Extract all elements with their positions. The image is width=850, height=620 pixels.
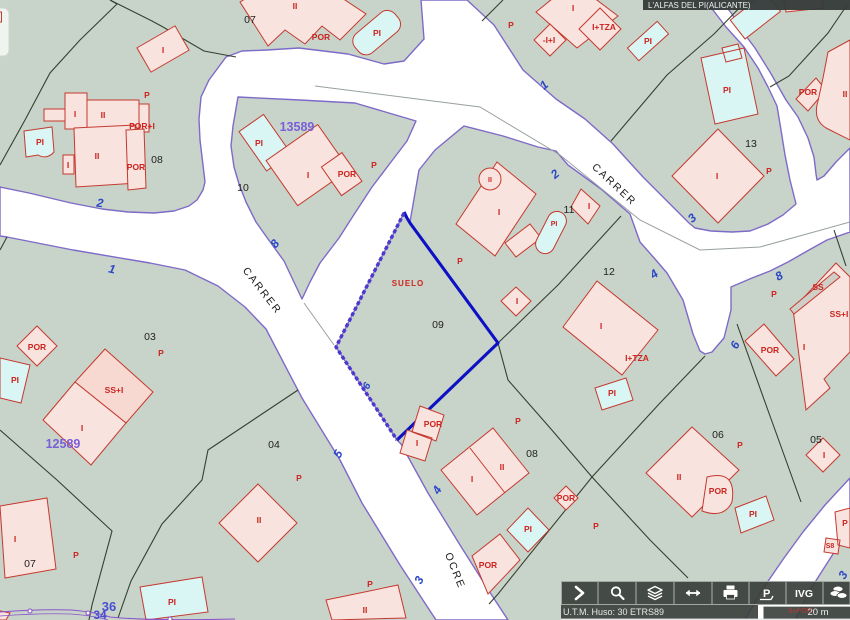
svg-text:04: 04 <box>268 439 280 451</box>
svg-text:POR+I: POR+I <box>129 121 155 131</box>
svg-text:-I+I: -I+I <box>543 35 556 45</box>
svg-text:P: P <box>593 521 599 531</box>
svg-text:PI: PI <box>524 524 532 534</box>
svg-text:PI: PI <box>608 388 616 398</box>
svg-text:S+POR: S+POR <box>788 608 812 615</box>
svg-text:13589: 13589 <box>280 120 315 134</box>
svg-text:P: P <box>763 588 770 600</box>
svg-text:POR: POR <box>312 32 330 42</box>
svg-text:I: I <box>572 3 574 13</box>
svg-text:P: P <box>771 289 777 299</box>
svg-text:SS+I: SS+I <box>105 385 124 395</box>
svg-text:POR: POR <box>127 162 145 172</box>
svg-text:I: I <box>74 109 76 119</box>
svg-text:SS+I: SS+I <box>830 309 849 319</box>
svg-text:II: II <box>101 110 106 120</box>
svg-text:11: 11 <box>564 204 575 216</box>
svg-text:I: I <box>498 207 500 217</box>
svg-text:I: I <box>803 342 805 352</box>
svg-text:I: I <box>516 296 518 306</box>
svg-text:PI: PI <box>644 36 652 46</box>
svg-text:06: 06 <box>712 429 724 441</box>
svg-text:13: 13 <box>745 138 757 150</box>
svg-text:U.T.M. Huso: 30 ETRS89: U.T.M. Huso: 30 ETRS89 <box>563 607 664 617</box>
svg-text:P: P <box>371 160 377 170</box>
svg-text:03: 03 <box>144 331 156 343</box>
svg-text:I: I <box>600 321 602 331</box>
svg-text:I: I <box>588 201 590 211</box>
svg-text:II: II <box>293 1 298 11</box>
svg-text:P: P <box>737 440 743 450</box>
svg-text:P: P <box>73 550 79 560</box>
svg-text:POR: POR <box>761 345 779 355</box>
svg-text:PI: PI <box>551 221 558 228</box>
svg-text:PI: PI <box>255 138 263 148</box>
svg-text:P: P <box>457 256 463 266</box>
svg-text:P: P <box>515 416 521 426</box>
svg-text:POR: POR <box>28 342 46 352</box>
svg-text:II: II <box>363 605 368 615</box>
svg-text:08: 08 <box>151 154 163 166</box>
svg-text:09: 09 <box>432 319 444 331</box>
svg-text:08: 08 <box>526 448 538 460</box>
svg-text:PI: PI <box>11 375 19 385</box>
svg-text:POR: POR <box>709 486 727 496</box>
svg-text:PI: PI <box>168 597 176 607</box>
svg-text:I: I <box>471 474 473 484</box>
svg-text:POR: POR <box>557 493 575 503</box>
svg-text:I: I <box>81 423 83 433</box>
svg-text:II: II <box>500 462 505 472</box>
svg-text:12589: 12589 <box>46 437 81 451</box>
svg-text:II: II <box>677 472 682 482</box>
svg-text:SUELO: SUELO <box>392 279 425 288</box>
svg-text:POR: POR <box>338 169 356 179</box>
svg-text:12: 12 <box>603 266 615 278</box>
svg-text:II: II <box>488 177 492 184</box>
svg-text:I: I <box>716 171 718 181</box>
svg-text:07: 07 <box>24 558 36 570</box>
svg-text:I+TZA: I+TZA <box>625 353 649 363</box>
svg-text:IVG: IVG <box>795 588 813 600</box>
svg-text:PI: PI <box>723 85 731 95</box>
svg-text:II: II <box>95 151 100 161</box>
svg-text:P: P <box>296 473 302 483</box>
svg-text:I: I <box>416 438 418 448</box>
svg-text:II: II <box>257 515 262 525</box>
svg-text:10: 10 <box>237 182 249 194</box>
svg-text:I: I <box>67 160 69 170</box>
svg-text:L'ALFAS DEL PI(ALICANTE): L'ALFAS DEL PI(ALICANTE) <box>648 1 751 10</box>
svg-text:05: 05 <box>810 434 822 446</box>
svg-text:PI: PI <box>36 137 44 147</box>
svg-text:P: P <box>766 166 772 176</box>
svg-text:P: P <box>367 579 373 589</box>
svg-text:I: I <box>162 45 164 55</box>
svg-text:POR: POR <box>799 87 817 97</box>
svg-text:P: P <box>508 20 514 30</box>
svg-text:POR: POR <box>479 560 497 570</box>
svg-text:POR: POR <box>424 419 442 429</box>
svg-text:S8: S8 <box>826 543 835 550</box>
svg-text:07: 07 <box>244 14 256 26</box>
svg-text:34: 34 <box>93 608 107 620</box>
svg-text:I+TZA: I+TZA <box>592 22 616 32</box>
svg-text:II: II <box>843 89 848 99</box>
svg-text:I: I <box>14 534 16 544</box>
svg-text:P: P <box>158 348 164 358</box>
svg-text:SS: SS <box>812 282 824 292</box>
svg-text:PI: PI <box>373 28 381 38</box>
svg-text:I: I <box>823 450 825 460</box>
svg-text:P: P <box>144 90 150 100</box>
svg-text:P: P <box>842 518 848 528</box>
svg-text:I: I <box>307 170 309 180</box>
svg-text:PI: PI <box>749 509 757 519</box>
